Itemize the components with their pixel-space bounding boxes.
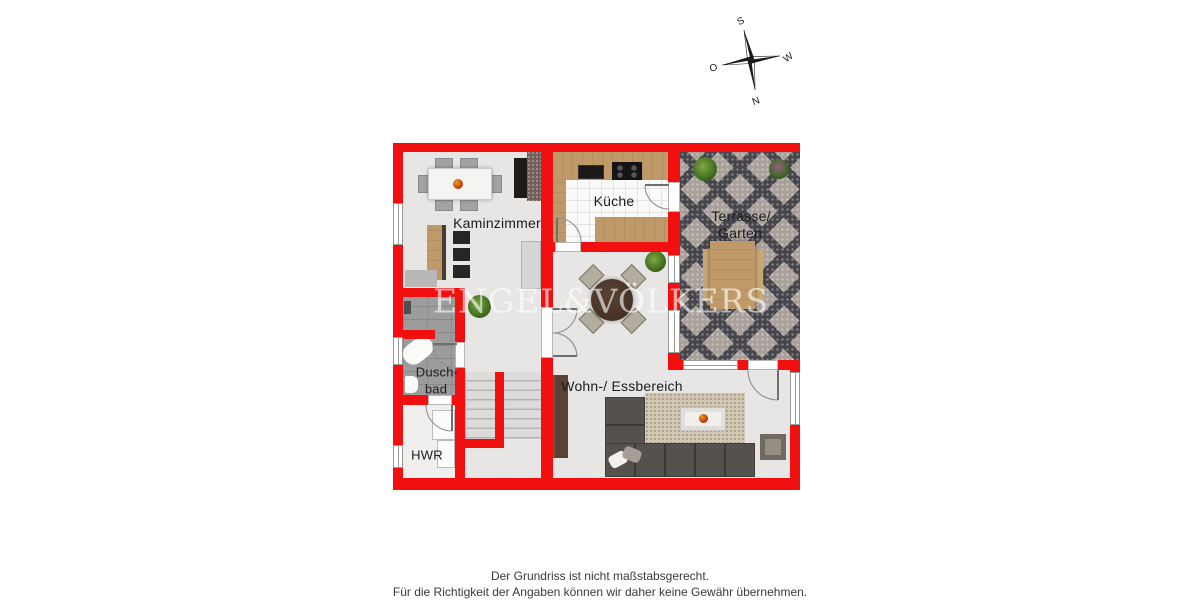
- compass-rose: S N O W: [706, 10, 801, 114]
- room-label-terrasse-1: Terrasse/: [711, 208, 770, 224]
- room-label-terrasse-2: Garten: [718, 225, 762, 241]
- disclaimer-line-1: Der Grundriss ist nicht maßstabsgerecht.: [0, 568, 1200, 584]
- room-label-kueche: Küche: [594, 193, 635, 209]
- room-label-kaminzimmer: Kaminzimmer: [453, 215, 541, 231]
- compass-north-label: N: [751, 95, 762, 108]
- room-label-duschbad-2: bad: [425, 382, 447, 397]
- room-label-wohnbereich: Wohn-/ Essbereich: [561, 378, 682, 394]
- brand-watermark: ENGEL&VÖLKERS: [433, 282, 769, 321]
- room-label-hwr: HWR: [411, 448, 443, 463]
- disclaimer-line-2: Für die Richtigkeit der Angaben können w…: [0, 584, 1200, 600]
- footer-disclaimer: Der Grundriss ist nicht maßstabsgerecht.…: [0, 568, 1200, 600]
- compass-east-label: O: [709, 62, 719, 74]
- compass-south-label: S: [736, 15, 747, 28]
- floor-plan: Kaminzimmer Küche Terrasse/ Garten Wohn-…: [393, 143, 800, 490]
- floorplan-page: S N O W: [0, 0, 1200, 600]
- room-label-duschbad-1: Dusch-: [416, 365, 458, 380]
- compass-west-label: W: [782, 50, 797, 65]
